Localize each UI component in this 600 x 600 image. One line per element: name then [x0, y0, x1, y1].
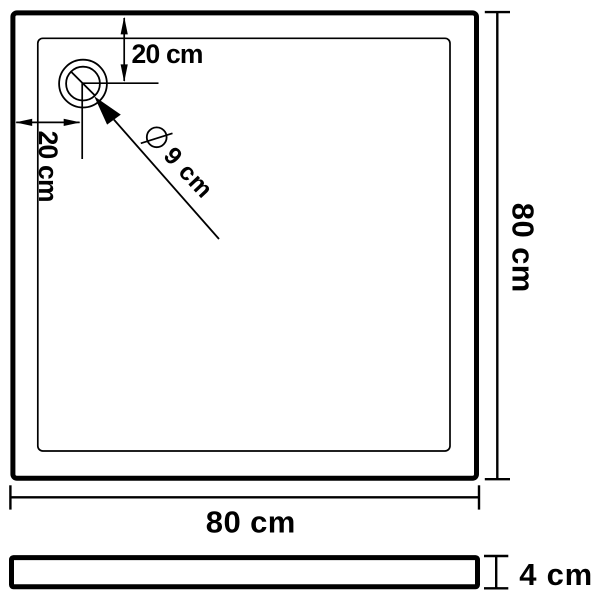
svg-text:80 cm: 80 cm	[206, 505, 296, 540]
svg-text:4 cm: 4 cm	[519, 557, 593, 592]
svg-text:20 cm: 20 cm	[33, 131, 63, 202]
svg-text:80 cm: 80 cm	[506, 203, 541, 293]
svg-text:20 cm: 20 cm	[132, 39, 203, 69]
